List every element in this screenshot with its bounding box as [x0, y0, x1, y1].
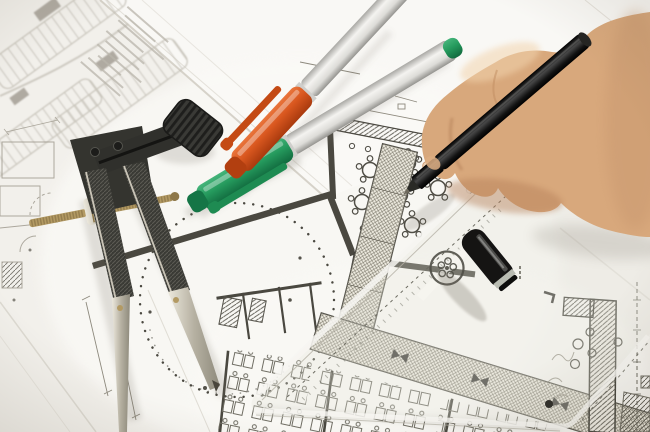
photo-architect-desk: Close-up photo of an architect's hand dr…: [0, 0, 650, 432]
vignette: [0, 0, 650, 432]
